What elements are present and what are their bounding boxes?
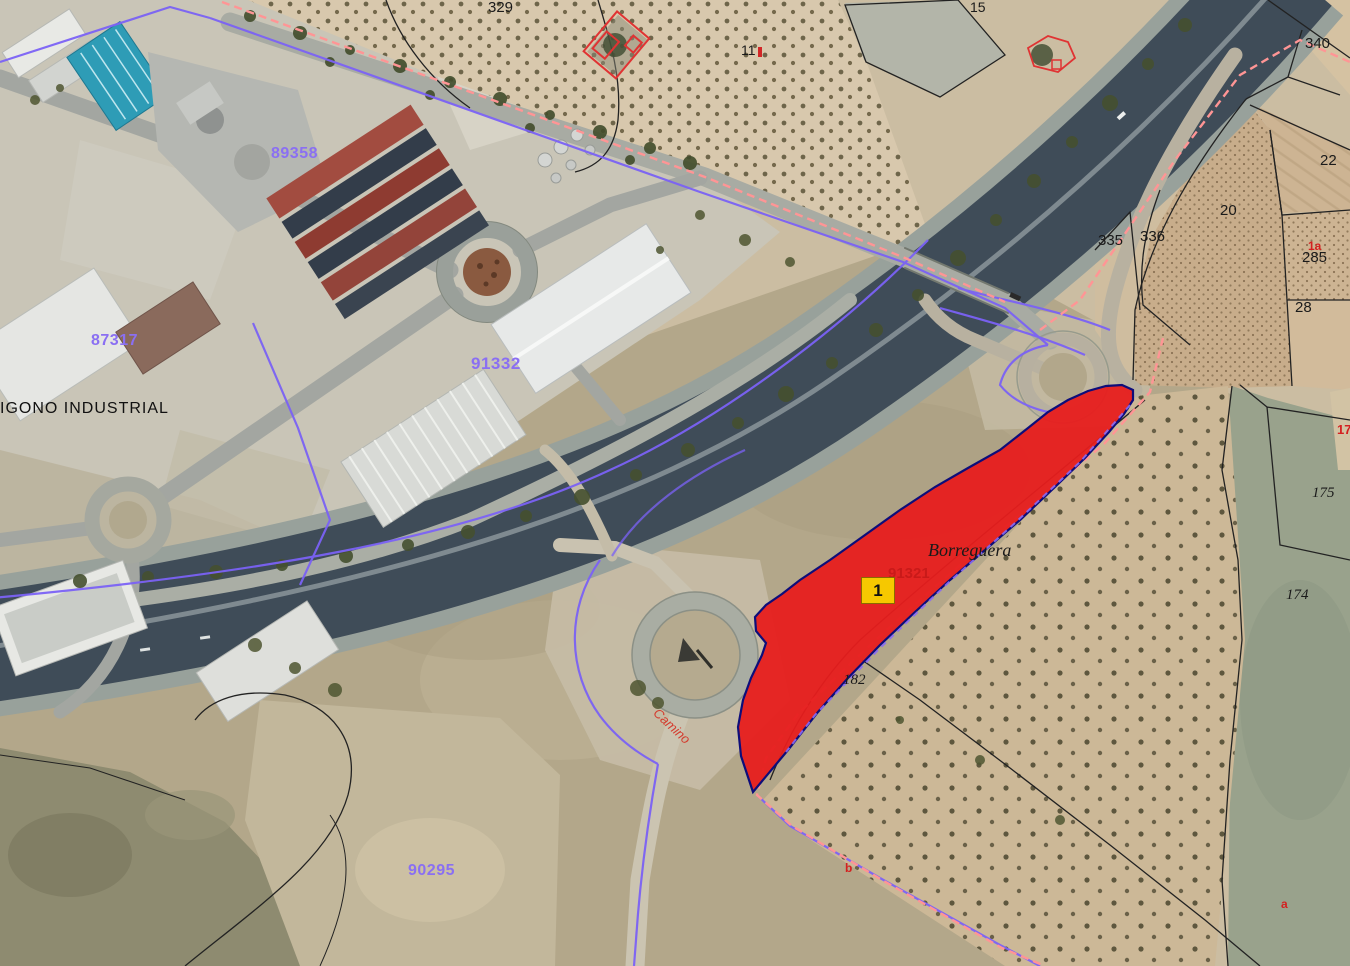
- cadastral-code-91332: 91332: [471, 355, 521, 372]
- cadastral-code-89358: 89358: [271, 146, 318, 162]
- subparcel-label-b: b: [845, 862, 852, 874]
- parcel-label-22: 22: [1320, 153, 1337, 168]
- place-label-borreguera: Borreguera: [928, 541, 1011, 559]
- selected-parcel-marker[interactable]: 1: [861, 577, 895, 604]
- parcel-label-335: 335: [1098, 233, 1123, 248]
- subparcel-label-17: 17: [1337, 423, 1350, 436]
- map-canvas: [0, 0, 1350, 966]
- parcel-label-175: 175: [1312, 486, 1335, 501]
- roundabout-camino: [632, 592, 758, 718]
- parcel-label-20: 20: [1220, 203, 1237, 218]
- red-tick: [758, 47, 762, 57]
- parcel-label-336: 336: [1140, 229, 1165, 244]
- parcel-label-340: 340: [1305, 36, 1330, 51]
- parcel-label-15: 15: [970, 0, 986, 14]
- subparcel-label-a: a: [1281, 898, 1288, 910]
- cadastral-map-viewport[interactable]: 329 15 11 340 22 20 335 336 1a 285 28 17…: [0, 0, 1350, 966]
- parcel-label-285: 285: [1302, 250, 1327, 265]
- place-label-poligono-industrial: IGONO INDUSTRIAL: [0, 401, 169, 417]
- parcel-label-28: 28: [1295, 300, 1312, 315]
- parcel-label-329: 329: [488, 0, 513, 15]
- parcel-label-174: 174: [1286, 588, 1309, 603]
- parcel-label-11: 11: [741, 43, 756, 57]
- cadastral-code-90295: 90295: [408, 863, 455, 879]
- parcel-label-182: 182: [843, 673, 866, 688]
- cadastral-code-87317: 87317: [91, 333, 138, 349]
